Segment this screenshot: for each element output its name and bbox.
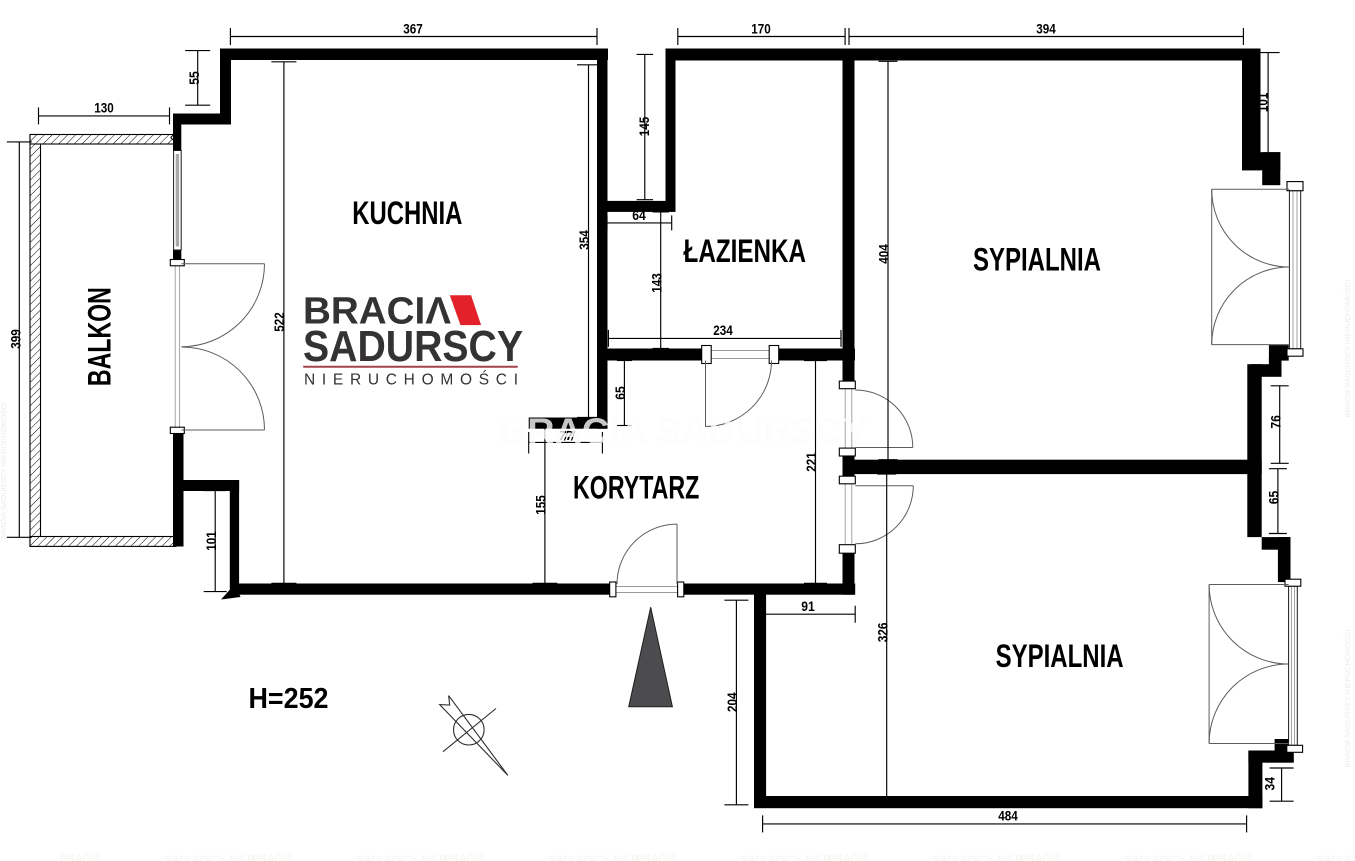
svg-text:354: 354: [576, 230, 592, 250]
svg-text:BRACIA: BRACIA: [828, 853, 870, 861]
svg-text:BRACIA: BRACIA: [636, 853, 678, 861]
svg-text:221: 221: [803, 452, 819, 472]
svg-text:34: 34: [1262, 777, 1278, 791]
svg-text:BRACIA: BRACIA: [1020, 853, 1062, 861]
svg-text:BRACIA SADURSCY NIERUCHOMOŚCI: BRACIA SADURSCY NIERUCHOMOŚCI: [1343, 630, 1352, 768]
svg-text:SADURSCY NIER.: SADURSCY NIER.: [549, 854, 642, 861]
svg-text:101: 101: [1254, 92, 1270, 112]
svg-text:367: 367: [403, 21, 423, 37]
svg-text:155: 155: [533, 495, 549, 515]
svg-text:BRACIA: BRACIA: [60, 853, 102, 861]
svg-text:130: 130: [94, 100, 114, 116]
svg-text:SADURSCY NIER.: SADURSCY NIER.: [741, 854, 834, 861]
svg-text:SYPIALNIA: SYPIALNIA: [973, 242, 1101, 278]
svg-text:BRACIA SADURSCY: BRACIA SADURSCY: [500, 411, 868, 452]
svg-text:394: 394: [1036, 21, 1056, 37]
svg-text:KUCHNIA: KUCHNIA: [352, 195, 462, 231]
svg-text:399: 399: [8, 329, 24, 349]
svg-text:SADURSCY NIER.: SADURSCY NIER.: [357, 854, 450, 861]
svg-text:170: 170: [751, 21, 771, 37]
svg-text:65: 65: [612, 386, 628, 400]
svg-text:KORYTARZ: KORYTARZ: [573, 469, 699, 505]
svg-text:SADURSCY NIER.: SADURSCY NIER.: [1125, 854, 1218, 861]
svg-text:64: 64: [632, 207, 646, 223]
svg-text:NIERUCHOMOŚCI: NIERUCHOMOŚCI: [304, 370, 518, 388]
svg-text:SADURSCY NIER.: SADURSCY NIER.: [165, 854, 258, 861]
svg-text:BRACIA SADURSCY NIERUCHOMOŚCI: BRACIA SADURSCY NIERUCHOMOŚCI: [0, 402, 8, 540]
svg-text:234: 234: [713, 322, 733, 338]
svg-text:404: 404: [876, 244, 892, 264]
svg-text:55: 55: [186, 71, 202, 85]
svg-text:SYPIALNIA: SYPIALNIA: [996, 638, 1124, 674]
svg-text:BRACIA: BRACIA: [252, 853, 294, 861]
svg-text:H=252: H=252: [249, 683, 329, 715]
svg-text:484: 484: [998, 808, 1018, 824]
svg-text:522: 522: [271, 312, 287, 332]
svg-text:BALKON: BALKON: [82, 287, 118, 386]
svg-text:SADURSCY: SADURSCY: [303, 323, 523, 371]
svg-text:BRACIA: BRACIA: [1212, 853, 1254, 861]
svg-text:76: 76: [1267, 415, 1283, 429]
svg-text:BRACIA SADURSCY NIERUCHOMOŚCI: BRACIA SADURSCY NIERUCHOMOŚCI: [1343, 280, 1352, 418]
svg-text:ŁAZIENKA: ŁAZIENKA: [684, 233, 807, 269]
svg-text:101: 101: [203, 531, 219, 551]
svg-text:91: 91: [801, 598, 815, 614]
svg-text:143: 143: [648, 273, 664, 293]
svg-text:204: 204: [724, 692, 740, 712]
svg-text:145: 145: [636, 117, 652, 137]
svg-text:65: 65: [1266, 491, 1282, 505]
svg-text:SADURSCY NIER.: SADURSCY NIER.: [933, 854, 1026, 861]
svg-text:BRACIA: BRACIA: [444, 853, 486, 861]
svg-text:326: 326: [874, 622, 890, 642]
svg-text:SADURSCY NIER.: SADURSCY NIER.: [1317, 854, 1355, 861]
